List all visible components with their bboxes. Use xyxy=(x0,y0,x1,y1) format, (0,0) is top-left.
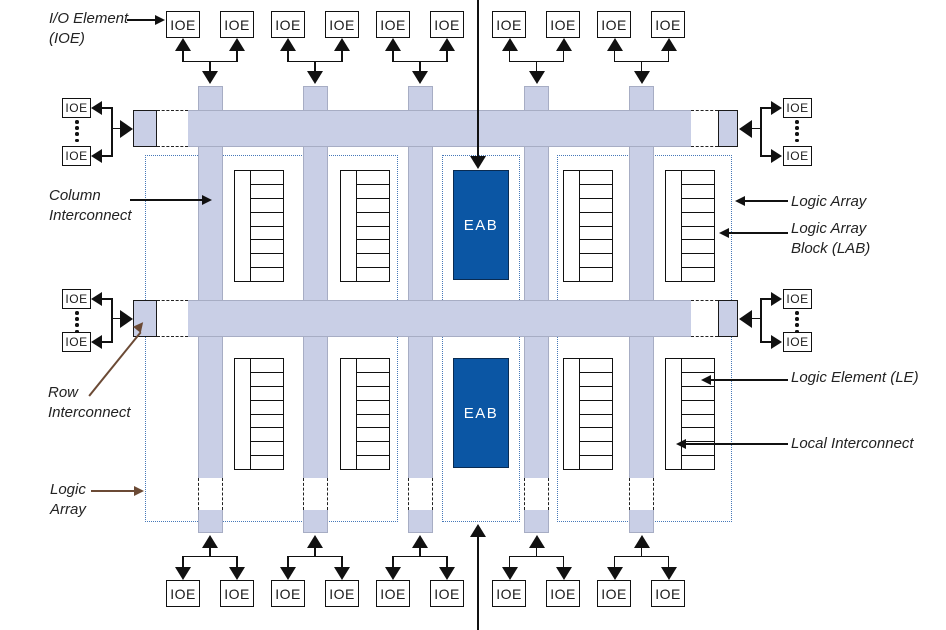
le-cell xyxy=(251,456,283,469)
row-interconnect-band xyxy=(133,300,738,337)
lab-local-interconnect-strip xyxy=(564,359,580,469)
column-interconnect-break xyxy=(303,478,328,510)
ioe-box: IOE xyxy=(62,146,91,166)
lab-local-interconnect-strip xyxy=(564,171,580,281)
ioe-box: IOE xyxy=(271,11,305,38)
le-stack xyxy=(580,359,612,469)
ellipsis-dots xyxy=(75,311,79,333)
arrow-line xyxy=(752,318,761,320)
arrow-left-icon xyxy=(739,120,752,138)
le-cell xyxy=(357,428,389,442)
le-cell xyxy=(580,359,612,373)
ioe-box: IOE xyxy=(325,580,359,607)
arrow-down-icon xyxy=(529,71,545,84)
le-cell xyxy=(682,401,714,415)
le-cell xyxy=(357,213,389,227)
pointer-line xyxy=(710,379,788,381)
le-cell xyxy=(682,185,714,199)
label-row-interconnect: Row Interconnect xyxy=(48,383,131,422)
label-column-interconnect: Column Interconnect xyxy=(49,186,132,225)
ellipsis-dots xyxy=(795,311,799,333)
row-interconnect-break xyxy=(157,110,188,147)
row-interconnect-break xyxy=(691,300,718,337)
le-cell xyxy=(580,171,612,185)
le-cell xyxy=(251,359,283,373)
arrow-right-icon xyxy=(771,292,782,306)
le-cell xyxy=(682,428,714,442)
arrow-right-icon xyxy=(120,120,133,138)
le-cell xyxy=(682,387,714,401)
column-interconnect-break xyxy=(524,478,549,510)
eab-block: EAB xyxy=(453,170,509,280)
arrow-line xyxy=(761,298,772,300)
le-cell xyxy=(357,442,389,456)
le-cell xyxy=(580,456,612,469)
arrow-line xyxy=(761,341,772,343)
row-interconnect-end-segment xyxy=(133,110,157,147)
ioe-box: IOE xyxy=(220,580,254,607)
arrow-down-icon xyxy=(439,567,455,580)
arrow-line xyxy=(760,298,762,343)
label-logic-array-left: Logic Array xyxy=(50,480,86,519)
le-cell xyxy=(682,456,714,469)
le-cell xyxy=(682,199,714,213)
ioe-box: IOE xyxy=(376,580,410,607)
le-cell xyxy=(580,428,612,442)
arrow-down-icon xyxy=(175,567,191,580)
arrow-down-icon xyxy=(470,156,486,169)
le-cell xyxy=(251,240,283,254)
le-cell xyxy=(251,373,283,387)
arrow-right-icon xyxy=(202,195,212,205)
eab-pointer-line-top xyxy=(477,0,479,157)
le-cell xyxy=(357,268,389,281)
arrow-down-icon xyxy=(334,567,350,580)
row-interconnect-break xyxy=(691,110,718,147)
le-cell xyxy=(251,185,283,199)
ioe-box: IOE xyxy=(220,11,254,38)
le-cell xyxy=(357,456,389,469)
ioe-box: IOE xyxy=(271,580,305,607)
arrow-down-icon xyxy=(502,567,518,580)
ioe-box: IOE xyxy=(62,98,91,118)
label-line: Array xyxy=(50,500,86,520)
lab-local-interconnect-strip xyxy=(341,359,357,469)
lab-local-interconnect-strip xyxy=(235,359,251,469)
pointer-line xyxy=(744,200,788,202)
arrow-right-icon xyxy=(771,149,782,163)
ioe-box: IOE xyxy=(783,98,812,118)
row-interconnect-end-segment xyxy=(718,110,738,147)
le-stack xyxy=(357,359,389,469)
arrow-down-icon xyxy=(607,567,623,580)
ellipsis-dots xyxy=(795,120,799,142)
ioe-box: IOE xyxy=(546,11,580,38)
le-stack xyxy=(251,359,283,469)
lab-block xyxy=(665,170,715,282)
column-interconnect-break xyxy=(198,478,223,510)
le-cell xyxy=(357,240,389,254)
le-cell xyxy=(251,171,283,185)
le-cell xyxy=(682,254,714,268)
lab-block xyxy=(340,358,390,470)
le-cell xyxy=(357,171,389,185)
arrow-line xyxy=(614,556,670,558)
arrow-down-icon xyxy=(202,71,218,84)
le-cell xyxy=(682,171,714,185)
lab-block xyxy=(234,358,284,470)
row-interconnect-end-segment xyxy=(133,300,157,337)
arrow-down-icon xyxy=(385,567,401,580)
le-cell xyxy=(251,254,283,268)
label-io-element: I/O Element (IOE) xyxy=(49,9,128,48)
arrow-line xyxy=(761,155,772,157)
le-cell xyxy=(580,442,612,456)
lab-block xyxy=(563,170,613,282)
le-cell xyxy=(682,359,714,373)
le-cell xyxy=(357,373,389,387)
arrow-left-icon xyxy=(739,310,752,328)
arrow-right-icon xyxy=(134,486,144,496)
le-cell xyxy=(357,415,389,429)
le-cell xyxy=(357,199,389,213)
lab-block xyxy=(340,170,390,282)
le-stack xyxy=(251,171,283,281)
arrow-line xyxy=(111,298,113,343)
label-logic-array-block: Logic Array Block (LAB) xyxy=(791,219,870,258)
arrow-down-icon xyxy=(307,71,323,84)
label-line: Column xyxy=(49,186,132,206)
arrow-down-icon xyxy=(634,71,650,84)
label-line: Logic xyxy=(50,480,86,500)
le-cell xyxy=(251,213,283,227)
ioe-box: IOE xyxy=(62,289,91,309)
le-cell xyxy=(580,227,612,241)
pointer-line xyxy=(127,19,155,21)
le-stack xyxy=(580,171,612,281)
le-cell xyxy=(251,268,283,281)
le-cell xyxy=(682,268,714,281)
le-cell xyxy=(682,213,714,227)
le-cell xyxy=(357,359,389,373)
arrow-line xyxy=(760,107,762,157)
le-cell xyxy=(357,387,389,401)
label-logic-element: Logic Element (LE) xyxy=(791,368,919,388)
le-cell xyxy=(580,213,612,227)
arrow-right-icon xyxy=(155,15,165,25)
fpga-architecture-diagram: EAB EAB IOE IOE IOE IOE IOE IOE IOE IOE … xyxy=(0,0,946,630)
label-line: (IOE) xyxy=(49,29,128,49)
le-cell xyxy=(251,442,283,456)
arrow-line xyxy=(761,107,772,109)
arrow-down-icon xyxy=(556,567,572,580)
ioe-box: IOE xyxy=(783,146,812,166)
ioe-box: IOE xyxy=(492,11,526,38)
row-interconnect-break xyxy=(157,300,188,337)
row-interconnect-end-segment xyxy=(718,300,738,337)
le-cell xyxy=(580,240,612,254)
le-cell xyxy=(251,401,283,415)
column-interconnect-break xyxy=(408,478,433,510)
le-cell xyxy=(580,415,612,429)
ioe-box: IOE xyxy=(546,580,580,607)
arrow-line xyxy=(509,556,565,558)
le-stack xyxy=(682,171,714,281)
le-cell xyxy=(357,401,389,415)
label-line: Interconnect xyxy=(48,403,131,423)
lab-local-interconnect-strip xyxy=(666,359,682,469)
le-cell xyxy=(580,387,612,401)
ellipsis-dots xyxy=(75,120,79,142)
ioe-box: IOE xyxy=(62,332,91,352)
arrow-down-icon xyxy=(661,567,677,580)
label-line: I/O Element xyxy=(49,9,128,29)
le-stack xyxy=(357,171,389,281)
ioe-box: IOE xyxy=(430,580,464,607)
label-line: Logic Array xyxy=(791,219,870,239)
le-cell xyxy=(580,254,612,268)
le-cell xyxy=(357,254,389,268)
ioe-box: IOE xyxy=(597,580,631,607)
ioe-box: IOE xyxy=(783,332,812,352)
label-line: Local Interconnect xyxy=(791,434,914,454)
le-cell xyxy=(682,227,714,241)
lab-block xyxy=(563,358,613,470)
le-cell xyxy=(580,373,612,387)
arrow-down-icon xyxy=(280,567,296,580)
arrow-line xyxy=(752,128,761,130)
lab-local-interconnect-strip xyxy=(235,171,251,281)
arrow-down-icon xyxy=(229,567,245,580)
le-cell xyxy=(580,199,612,213)
arrow-up-icon xyxy=(470,524,486,537)
label-local-interconnect: Local Interconnect xyxy=(791,434,914,454)
eab-pointer-line-bottom xyxy=(477,537,479,630)
ioe-box: IOE xyxy=(597,11,631,38)
arrow-right-icon xyxy=(771,335,782,349)
le-cell xyxy=(682,415,714,429)
column-interconnect-break xyxy=(629,478,654,510)
le-cell xyxy=(251,415,283,429)
le-cell xyxy=(580,268,612,281)
label-line: Logic Element (LE) xyxy=(791,368,919,388)
ioe-box: IOE xyxy=(166,11,200,38)
ioe-box: IOE xyxy=(783,289,812,309)
lab-local-interconnect-strip xyxy=(666,171,682,281)
arrow-right-icon xyxy=(120,310,133,328)
le-cell xyxy=(357,227,389,241)
ioe-box: IOE xyxy=(430,11,464,38)
arrow-line xyxy=(182,556,238,558)
le-cell xyxy=(357,185,389,199)
ioe-box: IOE xyxy=(166,580,200,607)
label-line: Interconnect xyxy=(49,206,132,226)
arrow-down-icon xyxy=(412,71,428,84)
lab-block xyxy=(234,170,284,282)
ioe-box: IOE xyxy=(651,11,685,38)
le-cell xyxy=(580,401,612,415)
eab-block: EAB xyxy=(453,358,509,468)
le-cell xyxy=(580,185,612,199)
arrow-line xyxy=(392,556,448,558)
le-cell xyxy=(251,199,283,213)
ioe-box: IOE xyxy=(492,580,526,607)
arrow-line xyxy=(111,107,113,157)
label-logic-array-right: Logic Array xyxy=(791,192,866,212)
pointer-line xyxy=(685,443,788,445)
pointer-line xyxy=(728,232,788,234)
arrow-right-icon xyxy=(771,101,782,115)
pointer-line xyxy=(130,199,202,201)
lab-local-interconnect-strip xyxy=(341,171,357,281)
ioe-box: IOE xyxy=(651,580,685,607)
le-cell xyxy=(251,428,283,442)
label-line: Logic Array xyxy=(791,192,866,212)
ioe-box: IOE xyxy=(376,11,410,38)
label-line: Block (LAB) xyxy=(791,239,870,259)
le-cell xyxy=(251,227,283,241)
arrow-line xyxy=(287,556,343,558)
le-cell xyxy=(251,387,283,401)
ioe-box: IOE xyxy=(325,11,359,38)
le-cell xyxy=(682,240,714,254)
pointer-line xyxy=(91,490,134,492)
row-interconnect-band xyxy=(133,110,738,147)
